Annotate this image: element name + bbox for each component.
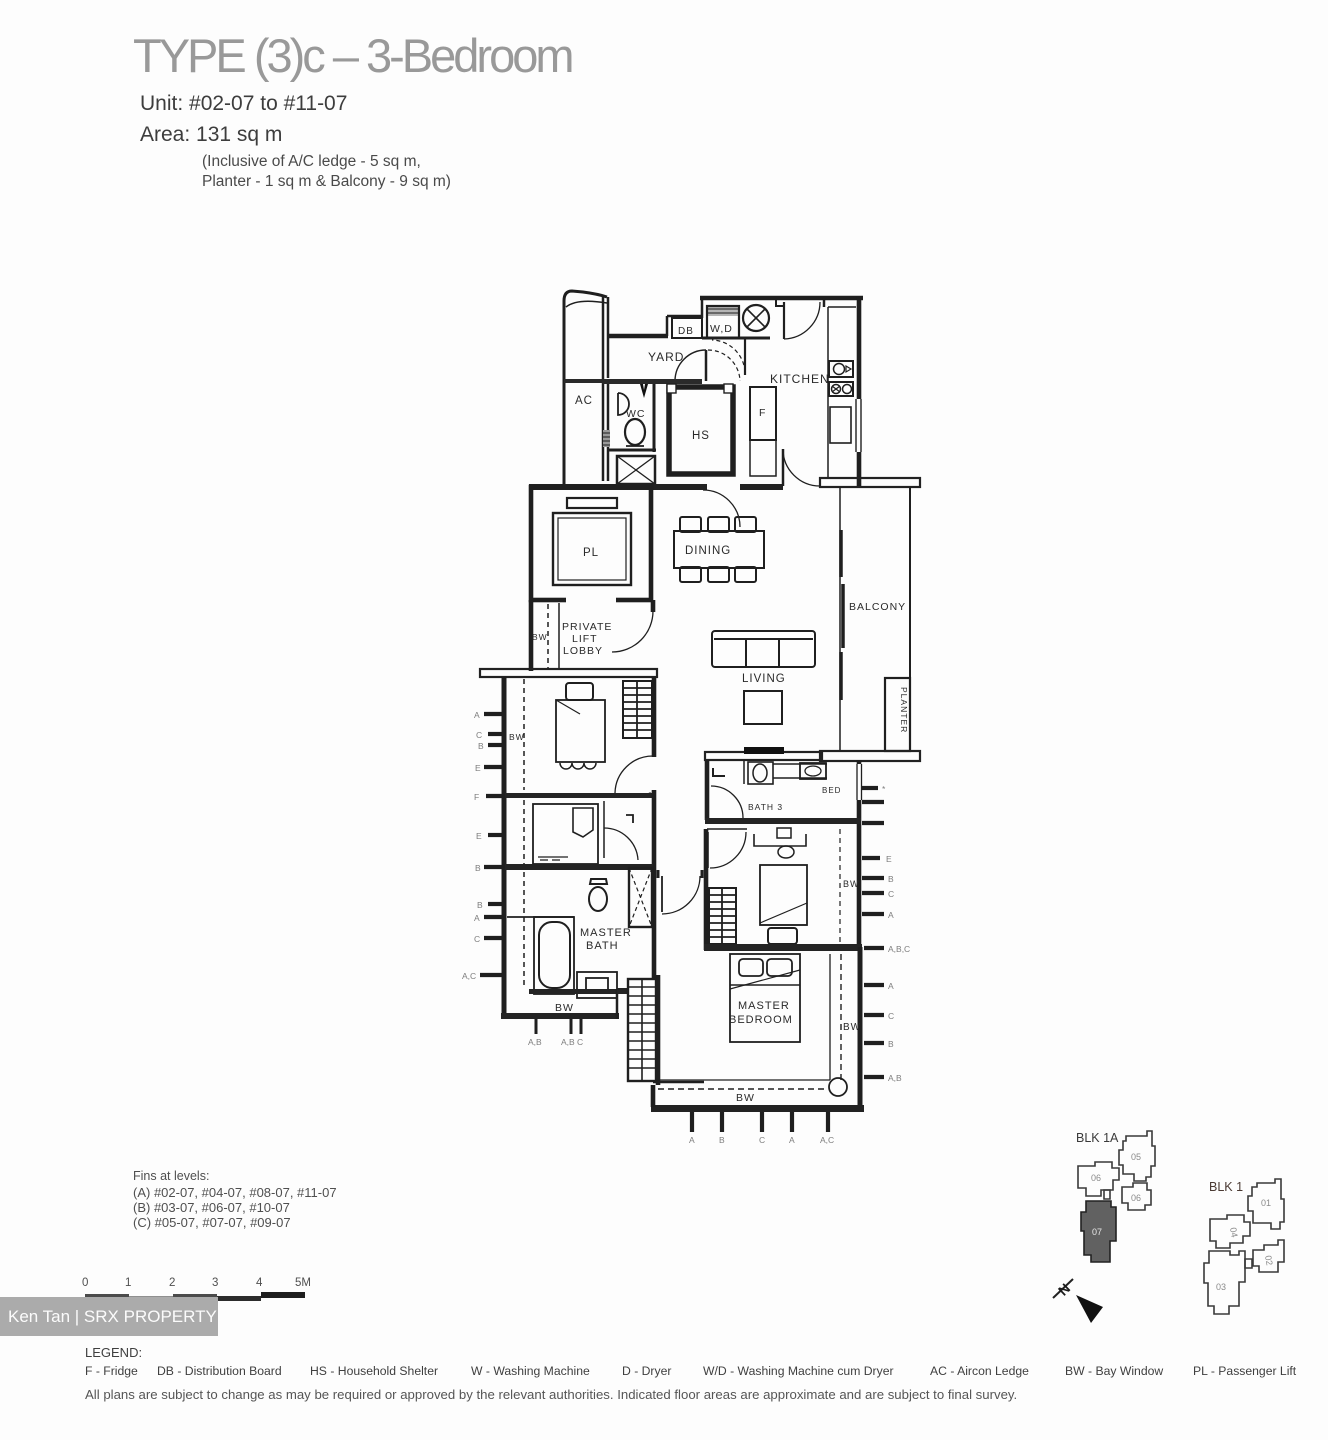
svg-text:A: A: [689, 1135, 695, 1145]
svg-text:A: A: [474, 710, 480, 720]
svg-text:BW: BW: [509, 732, 525, 742]
svg-text:4: 4: [256, 1277, 263, 1289]
svg-text:B: B: [888, 1039, 894, 1049]
svg-text:E: E: [475, 763, 481, 773]
svg-text:LOBBY: LOBBY: [563, 645, 603, 657]
svg-text:A,C: A,C: [820, 1135, 834, 1145]
svg-text:PLANTER: PLANTER: [899, 687, 909, 733]
svg-text:(Inclusive of A/C ledge - 5 sq: (Inclusive of A/C ledge - 5 sq m,: [202, 153, 421, 170]
svg-text:LIVING: LIVING: [742, 673, 786, 685]
svg-text:A: A: [474, 913, 480, 923]
svg-text:BW - Bay Window: BW - Bay Window: [1065, 1364, 1163, 1378]
svg-text:A,C: A,C: [462, 971, 476, 981]
svg-text:BATH 3: BATH 3: [748, 802, 783, 812]
svg-text:W/D - Washing Machine cum Drye: W/D - Washing Machine cum Dryer: [703, 1364, 894, 1378]
svg-text:PL: PL: [583, 547, 599, 559]
svg-text:A,B,C: A,B,C: [888, 944, 910, 954]
svg-text:PRIVATE: PRIVATE: [562, 621, 612, 633]
svg-text:F: F: [759, 407, 766, 419]
svg-text:0: 0: [82, 1277, 88, 1289]
svg-text:06: 06: [1091, 1173, 1101, 1183]
svg-text:07: 07: [1092, 1227, 1102, 1237]
svg-text:Ken Tan | SRX PROPERTY: Ken Tan | SRX PROPERTY: [8, 1307, 217, 1326]
svg-text:C: C: [759, 1135, 765, 1145]
svg-text:A: A: [888, 981, 894, 991]
svg-text:*: *: [882, 784, 886, 794]
svg-text:(A) #02-07, #04-07, #08-07, #1: (A) #02-07, #04-07, #08-07, #11-07: [133, 1185, 337, 1200]
svg-text:BW: BW: [736, 1092, 755, 1104]
svg-text:F - Fridge: F - Fridge: [85, 1364, 138, 1378]
svg-text:Area: 131 sq m: Area: 131 sq m: [140, 123, 282, 146]
svg-text:LEGEND:: LEGEND:: [85, 1345, 142, 1360]
svg-text:BW: BW: [532, 632, 548, 642]
svg-text:BW: BW: [555, 1002, 574, 1014]
svg-text:W,D: W,D: [710, 323, 733, 335]
svg-text:PL - Passenger Lift: PL - Passenger Lift: [1193, 1364, 1297, 1378]
svg-text:C: C: [888, 1011, 894, 1021]
svg-text:KITCHEN: KITCHEN: [770, 372, 830, 386]
svg-text:3: 3: [212, 1277, 218, 1289]
svg-text:DB: DB: [678, 326, 694, 337]
svg-text:A: A: [888, 910, 894, 920]
svg-text:BLK 1A: BLK 1A: [1076, 1131, 1119, 1145]
svg-text:06: 06: [1131, 1193, 1141, 1203]
svg-text:01: 01: [1261, 1198, 1271, 1208]
svg-text:BATH: BATH: [586, 940, 619, 952]
svg-text:DB - Distribution Board: DB - Distribution Board: [157, 1364, 282, 1378]
svg-text:(C) #05-07, #07-07, #09-07: (C) #05-07, #07-07, #09-07: [133, 1215, 291, 1230]
svg-text:A,B: A,B: [528, 1037, 542, 1047]
svg-text:E: E: [476, 831, 482, 841]
svg-text:BEDROOM: BEDROOM: [729, 1014, 793, 1026]
svg-text:C: C: [888, 889, 894, 899]
svg-text:C: C: [476, 730, 482, 740]
svg-text:A,B C: A,B C: [561, 1037, 583, 1047]
svg-text:AC - Aircon Ledge: AC - Aircon Ledge: [930, 1364, 1029, 1378]
svg-text:D - Dryer: D - Dryer: [622, 1364, 671, 1378]
svg-text:AC: AC: [575, 395, 593, 407]
svg-text:Unit: #02-07 to #11-07: Unit: #02-07 to #11-07: [140, 92, 347, 115]
svg-text:MASTER: MASTER: [738, 1000, 790, 1012]
svg-text:2: 2: [169, 1277, 175, 1289]
svg-text:B: B: [477, 900, 483, 910]
svg-text:F: F: [474, 792, 479, 802]
svg-text:(B) #03-07, #06-07, #10-07: (B) #03-07, #06-07, #10-07: [133, 1200, 290, 1215]
svg-text:A: A: [789, 1135, 795, 1145]
svg-text:B: B: [478, 741, 484, 751]
svg-text:05: 05: [1131, 1152, 1141, 1162]
svg-text:5M: 5M: [295, 1277, 311, 1289]
svg-text:02: 02: [1263, 1255, 1275, 1267]
svg-text:A,B: A,B: [888, 1073, 902, 1083]
svg-text:E: E: [886, 854, 892, 864]
svg-text:BW: BW: [843, 1022, 861, 1033]
svg-text:MASTER: MASTER: [580, 927, 632, 939]
svg-text:C: C: [474, 934, 480, 944]
svg-text:All plans are subject to chang: All plans are subject to change as may b…: [85, 1387, 1017, 1402]
svg-text:BW: BW: [843, 879, 860, 889]
svg-text:B: B: [475, 863, 481, 873]
svg-text:1: 1: [125, 1277, 131, 1289]
svg-text:DINING: DINING: [685, 545, 731, 557]
svg-text:WC: WC: [626, 408, 646, 420]
svg-text:W - Washing Machine: W - Washing Machine: [471, 1364, 590, 1378]
svg-text:LIFT: LIFT: [572, 633, 598, 645]
svg-text:03: 03: [1216, 1282, 1226, 1292]
svg-text:B: B: [888, 874, 894, 884]
svg-text:04: 04: [1228, 1227, 1240, 1239]
svg-text:BALCONY: BALCONY: [849, 601, 906, 613]
svg-text:B: B: [719, 1135, 725, 1145]
svg-text:BLK 1: BLK 1: [1209, 1180, 1243, 1194]
svg-text:Planter - 1 sq m & Balcony - 9: Planter - 1 sq m & Balcony - 9 sq m): [202, 173, 451, 190]
svg-text:HS: HS: [692, 430, 710, 442]
svg-text:YARD: YARD: [648, 350, 684, 364]
svg-text:N: N: [1055, 1280, 1073, 1299]
svg-text:TYPE (3)c – 3-Bedroom: TYPE (3)c – 3-Bedroom: [133, 29, 572, 82]
svg-text:BED: BED: [822, 786, 841, 795]
svg-text:Fins at levels:: Fins at levels:: [133, 1169, 209, 1183]
svg-text:HS - Household Shelter: HS - Household Shelter: [310, 1364, 438, 1378]
